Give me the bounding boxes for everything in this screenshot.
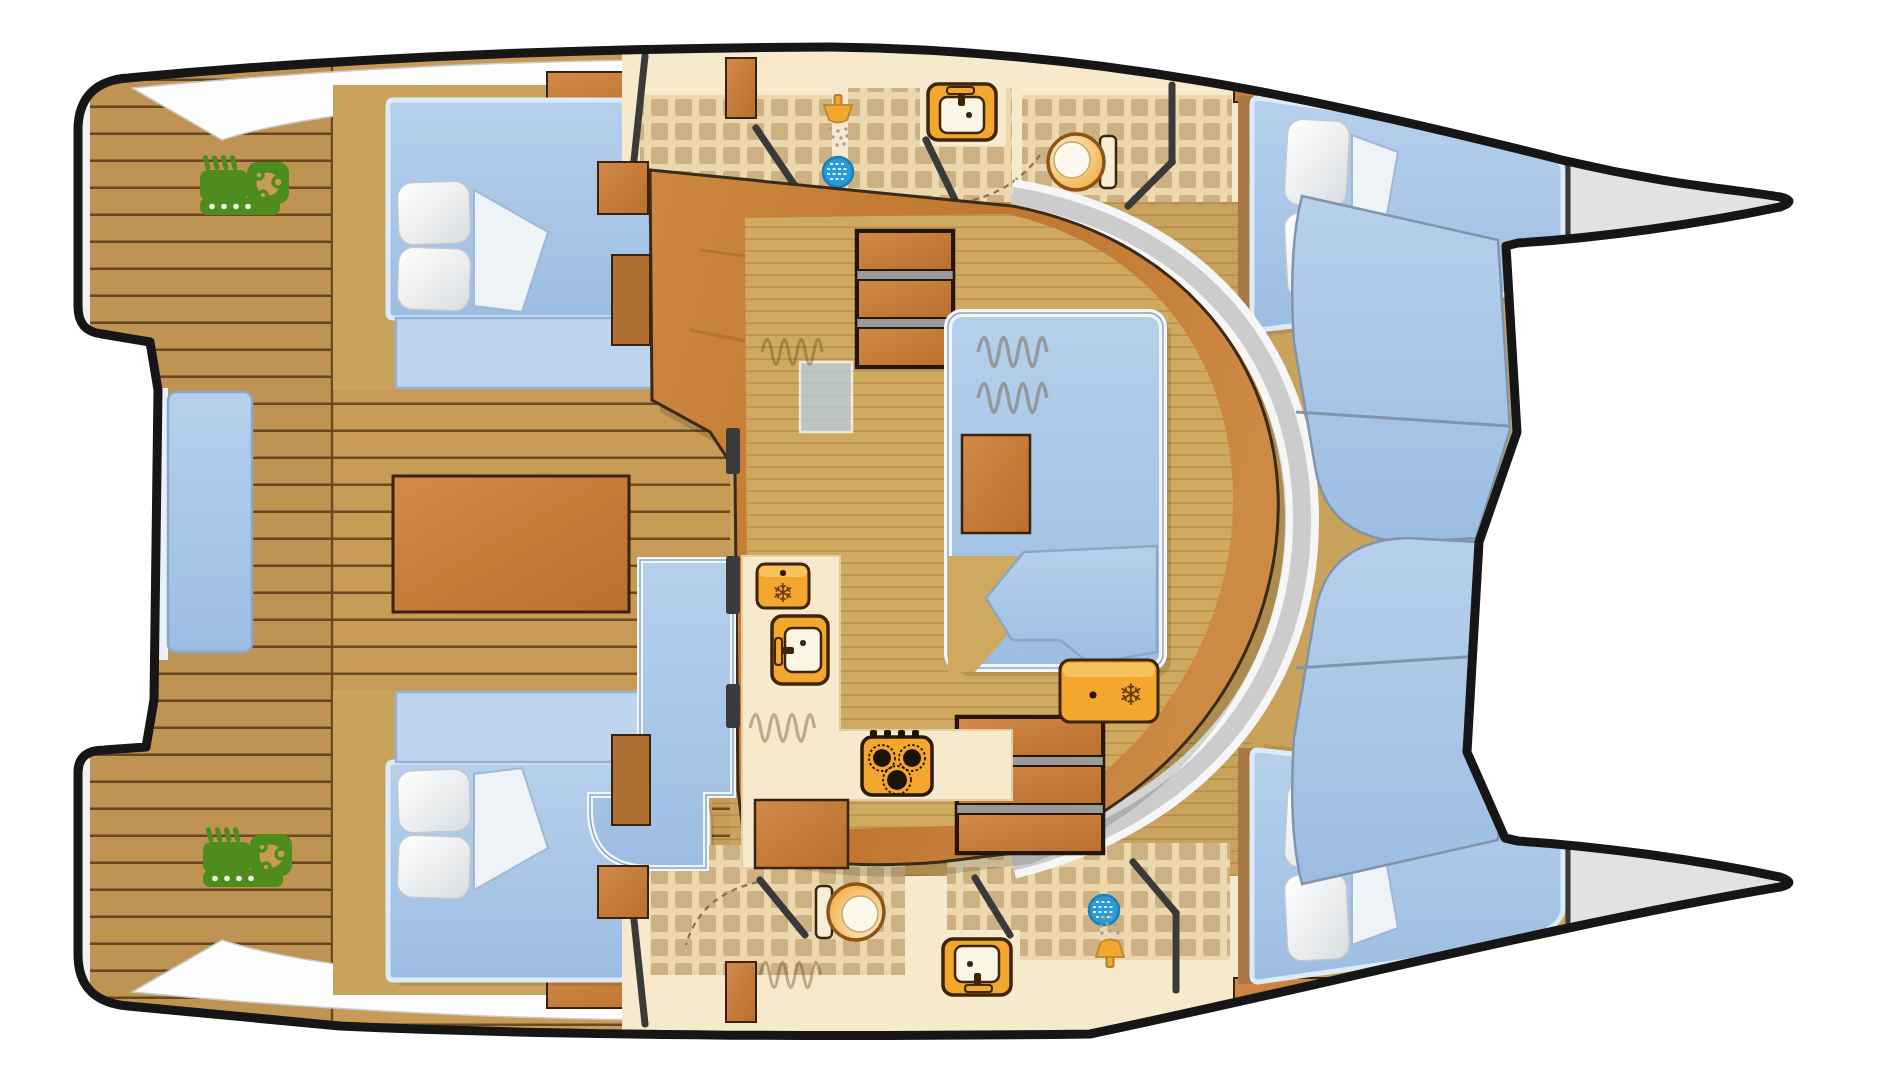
door-frame: [726, 962, 756, 1022]
locker-door: [612, 735, 650, 825]
pillow: [1284, 118, 1350, 207]
door-frame: [598, 866, 648, 918]
fridge-icon: [757, 564, 809, 608]
sink-icon: [943, 939, 1011, 995]
toilet-icon: [816, 884, 884, 940]
curved-bench-port: [1292, 196, 1510, 542]
locker-door: [612, 255, 650, 345]
toilet-icon: [1048, 134, 1116, 190]
stair-tread: [858, 328, 952, 366]
pillow: [397, 769, 471, 833]
pillow: [397, 247, 471, 311]
pillow: [397, 181, 471, 245]
shower-drain-icon: [1089, 895, 1119, 925]
floor-hatch: [800, 362, 852, 432]
companionway-stairs-port: [856, 230, 954, 368]
galley-sink-icon: [772, 616, 828, 684]
door-frame: [598, 162, 648, 214]
stove-icon: [862, 730, 932, 795]
pillow: [397, 835, 471, 899]
galley-cabinet: [755, 800, 848, 868]
freezer-icon: [1060, 660, 1158, 722]
pillow: [1284, 872, 1350, 961]
side-bench: [168, 392, 252, 652]
catamaran-floor-plan: ❄ ❄: [0, 0, 1897, 1080]
cockpit-table: [393, 476, 629, 612]
stair-tread: [958, 814, 1102, 852]
shower-drain-icon: [823, 157, 853, 187]
floor-plan-canvas: ❄ ❄: [0, 0, 1897, 1080]
stair-tread: [858, 280, 952, 318]
coffee-table: [962, 435, 1030, 533]
sink-icon: [928, 84, 996, 140]
stair-tread: [858, 232, 952, 270]
door-frame: [726, 58, 756, 118]
